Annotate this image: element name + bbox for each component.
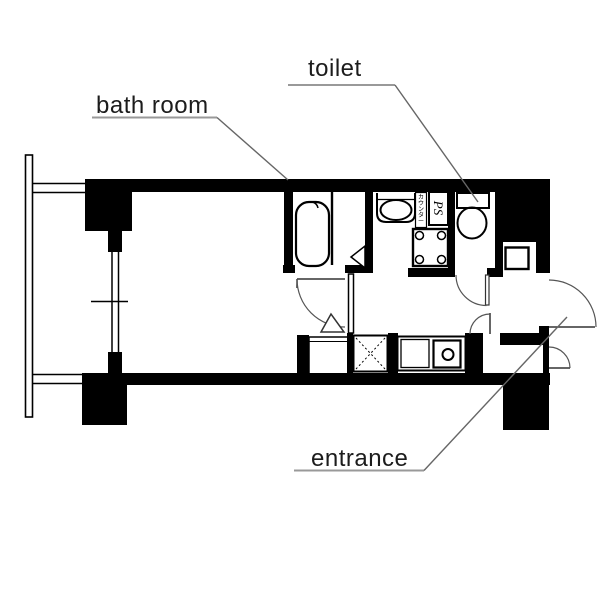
bath-room-leader xyxy=(92,118,288,181)
bathtub xyxy=(296,202,329,266)
entrance-small-door-swing xyxy=(549,347,570,368)
partition-wall xyxy=(349,274,354,333)
washing-machine-space xyxy=(354,336,388,372)
bath-room-label: bath room xyxy=(96,92,209,120)
fridge-space xyxy=(309,337,351,376)
entrance-door-swing xyxy=(549,280,596,327)
balcony-window xyxy=(91,252,128,352)
hall-door-swing xyxy=(470,313,490,334)
ps-label: PS xyxy=(431,200,446,216)
stove-burner-icon xyxy=(443,349,454,360)
balcony-railing xyxy=(26,155,87,417)
washbasin xyxy=(381,200,412,220)
leader-lines xyxy=(92,85,567,471)
vanity-counter xyxy=(377,193,415,222)
toilet-door-swing xyxy=(456,275,489,306)
counter-strip-label: カウンター xyxy=(418,194,424,225)
shoe-cabinet xyxy=(506,248,529,270)
washer-pan xyxy=(413,229,448,266)
kitchen-fixtures xyxy=(309,336,466,377)
bath-door-icon xyxy=(351,246,365,268)
floor-plan-drawing: カウンター PS xyxy=(0,0,600,600)
toilet-fixtures xyxy=(457,193,489,239)
floor-plan-canvas: カウンター PS xyxy=(0,0,600,600)
toilet-label: toilet xyxy=(308,55,362,83)
entrance-fixtures xyxy=(506,248,529,270)
stove xyxy=(434,341,461,368)
kitchen-counter xyxy=(398,337,466,371)
door-swings xyxy=(297,275,596,368)
room-door-swing xyxy=(297,279,345,332)
entrance-label: entrance xyxy=(311,445,408,473)
toilet-bowl xyxy=(458,208,487,239)
bathroom-fixtures xyxy=(296,192,365,268)
kitchen-sink xyxy=(401,340,429,368)
